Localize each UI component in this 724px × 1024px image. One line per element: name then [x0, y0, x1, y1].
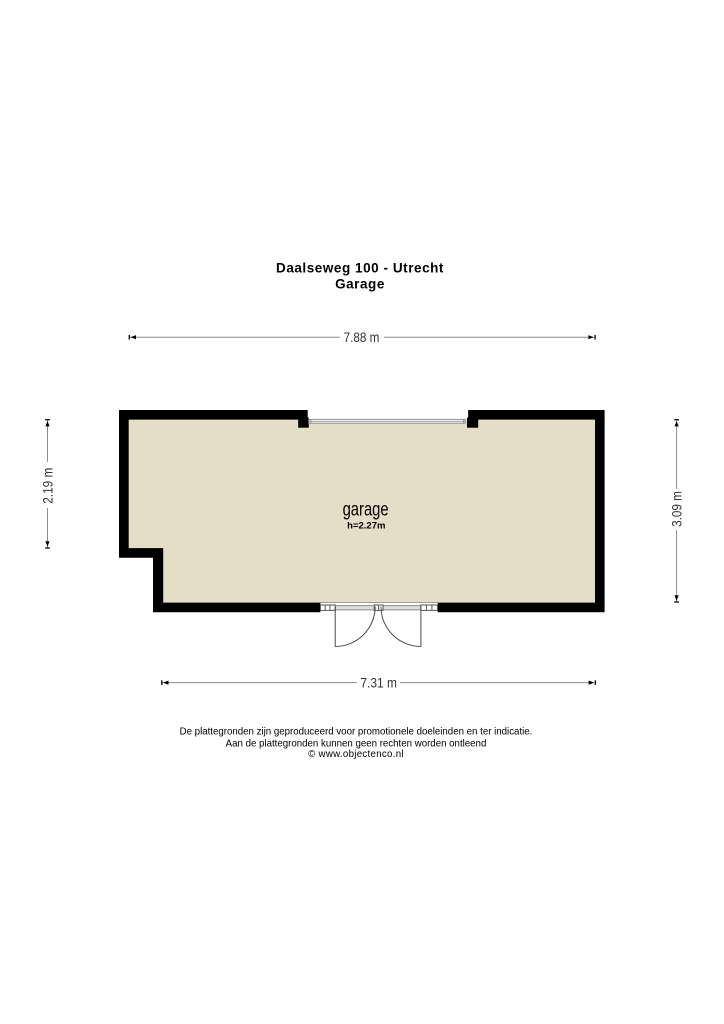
svg-text:Aan de plattegronden kunnen ge: Aan de plattegronden kunnen geen rechten… [226, 738, 487, 749]
svg-text:7.88 m: 7.88 m [344, 330, 380, 345]
svg-text:h=2.27m: h=2.27m [347, 521, 385, 532]
svg-text:De plattegronden zijn geproduc: De plattegronden zijn geproduceerd voor … [180, 726, 533, 737]
svg-text:7.31 m: 7.31 m [360, 676, 397, 691]
svg-text:Garage: Garage [335, 277, 385, 292]
svg-text:3.09 m: 3.09 m [669, 491, 684, 527]
svg-text:garage: garage [343, 499, 389, 520]
svg-text:© www.objectenco.nl: © www.objectenco.nl [308, 749, 404, 760]
svg-text:2.19 m: 2.19 m [40, 468, 55, 504]
svg-text:Daalseweg 100 - Utrecht: Daalseweg 100 - Utrecht [276, 261, 444, 276]
